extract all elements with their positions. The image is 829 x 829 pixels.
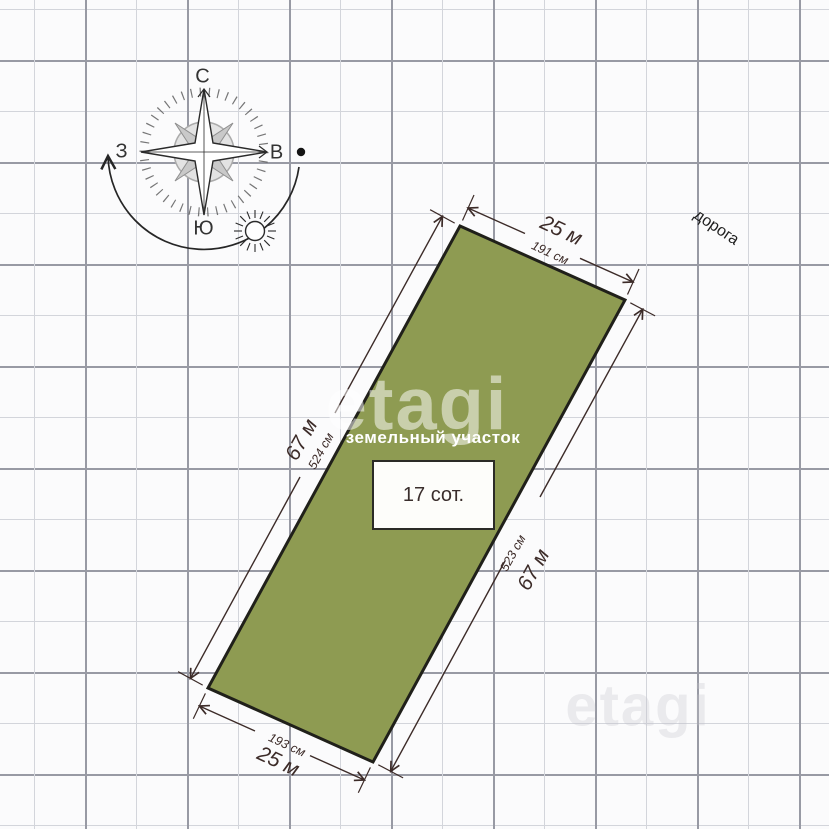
plan-drawing — [0, 0, 829, 829]
dim-line-bottom — [199, 706, 255, 731]
compass-north-label: С — [195, 66, 210, 89]
area-value-label: 17 сот. — [403, 484, 464, 507]
sun-icon — [234, 210, 276, 252]
compass-rose-icon — [141, 89, 267, 215]
dim-line-top — [468, 208, 525, 234]
compass-west-label: З — [115, 141, 128, 164]
compass-south-label: Ю — [193, 218, 214, 241]
area-box: 17 сот. — [372, 460, 495, 530]
compass-east-label: В — [270, 142, 284, 165]
plot-name-label: земельный участок — [346, 428, 520, 448]
plot-plan-canvas: etagi etagi С Ю З В дорога земельный уча… — [0, 0, 829, 829]
east-dot — [297, 148, 305, 156]
